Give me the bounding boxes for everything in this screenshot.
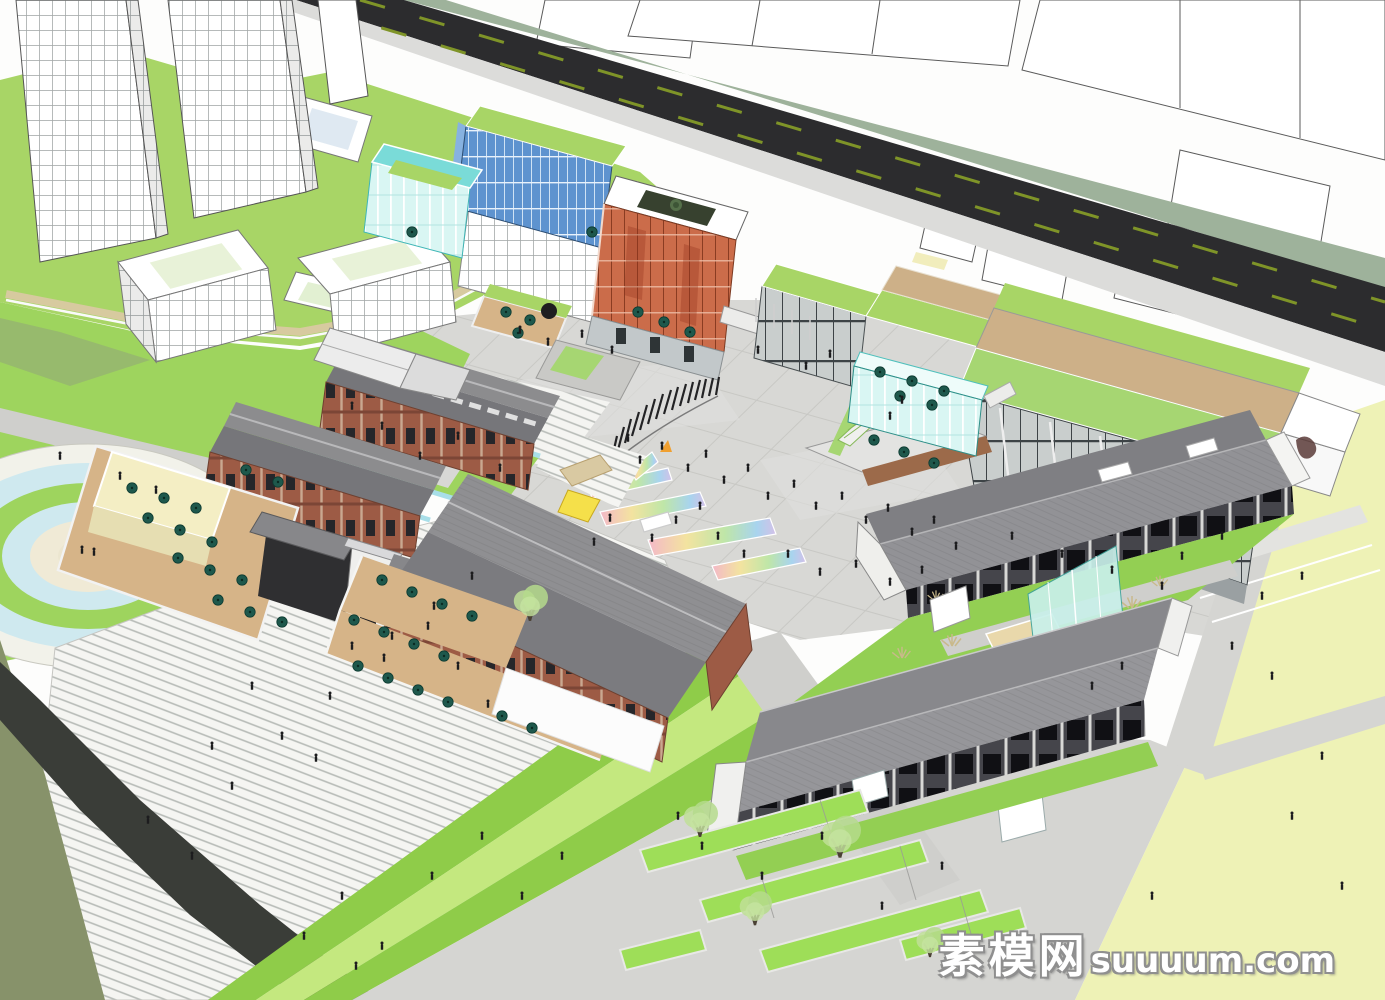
sphere-sculpture [541,303,557,319]
watermark-site-name: 素模网 [939,920,1089,986]
render-viewport: 素模网suuuum.com [0,0,1385,1000]
watermark: 素模网suuuum.com [939,920,1335,986]
architectural-render [0,0,1385,1000]
watermark-domain: suuuum.com [1091,941,1335,981]
orange-atrium-building [586,176,748,380]
